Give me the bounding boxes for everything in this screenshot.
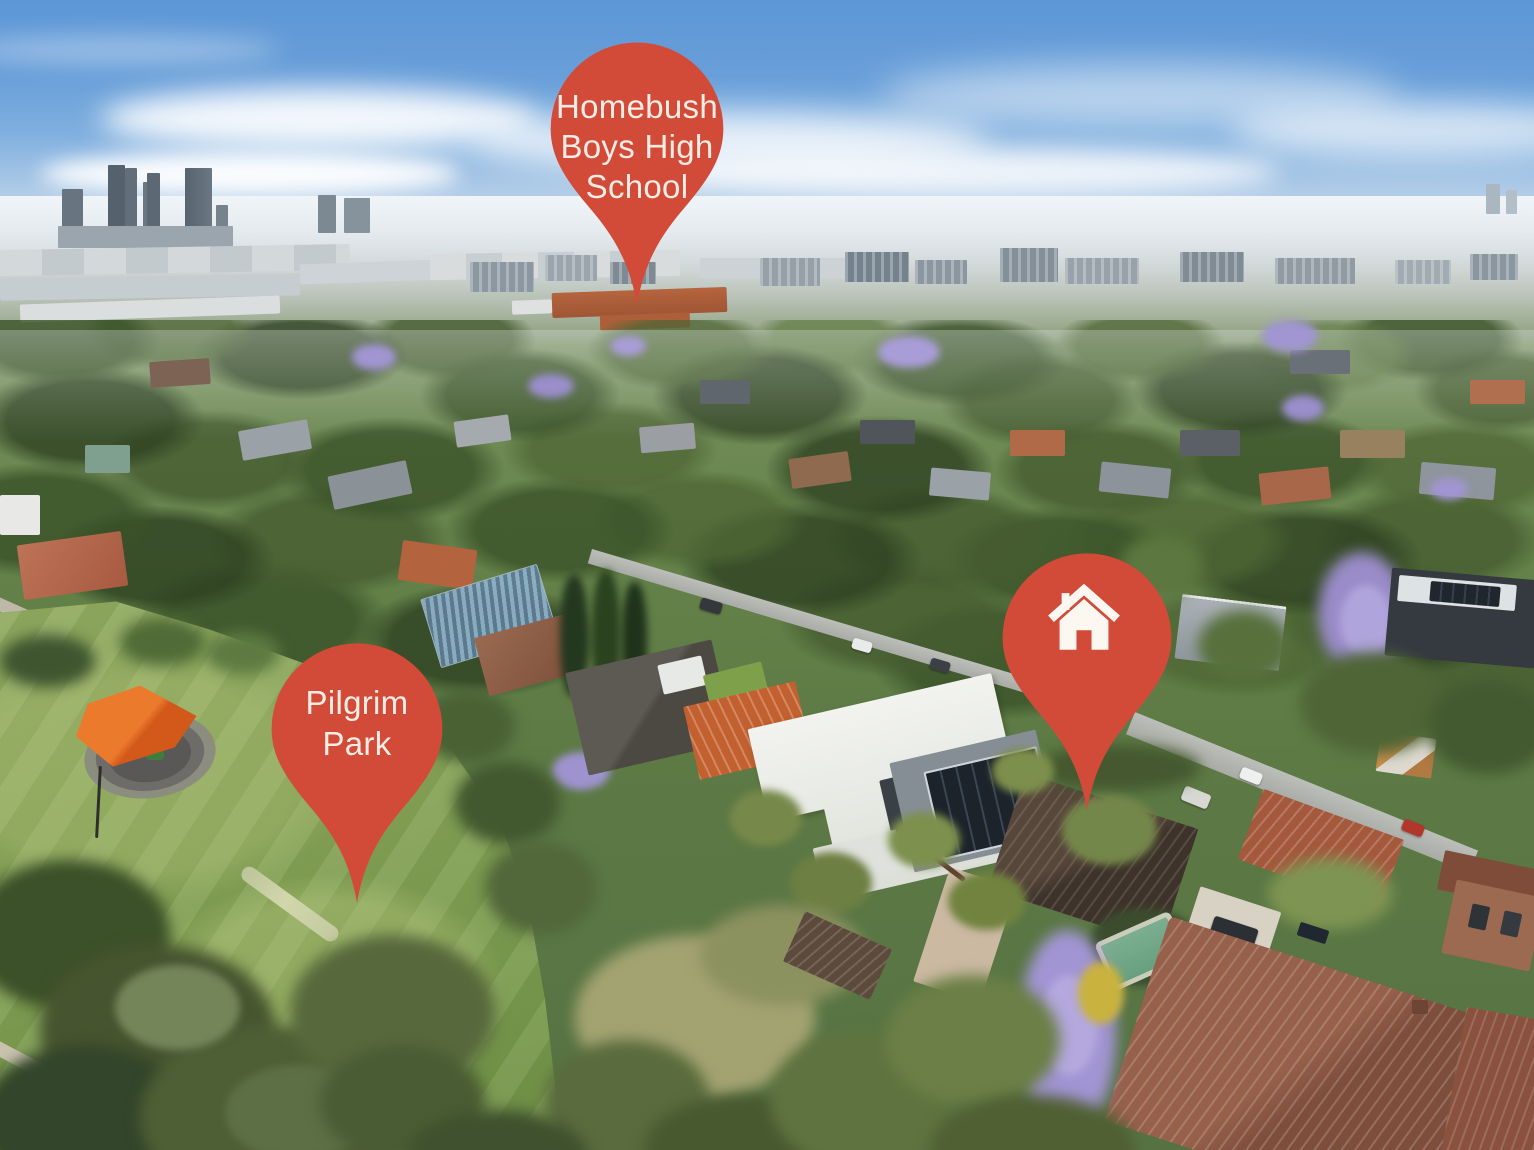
- tower: [344, 198, 370, 233]
- roof-blob: [860, 420, 915, 444]
- tree-blob: [115, 965, 240, 1050]
- tree-blob: [1268, 858, 1393, 930]
- roof-blob: [1470, 380, 1525, 404]
- tree-blob: [1300, 652, 1445, 754]
- marker-property: [995, 548, 1179, 812]
- aerial-photo: Homebush Boys High School Pilgrim Park: [0, 0, 1534, 1150]
- tree-blob: [878, 336, 940, 368]
- palm-tree: [790, 852, 872, 914]
- roof-blob: [700, 380, 750, 404]
- tree-blob: [1430, 478, 1468, 500]
- roof-blob: [929, 467, 991, 500]
- roof-blob: [1290, 350, 1350, 374]
- tower: [1506, 190, 1517, 214]
- yellow-tree: [1078, 962, 1124, 1024]
- tree-blob: [610, 336, 646, 356]
- tree-blob: [885, 975, 1060, 1105]
- building-block: [1395, 260, 1451, 284]
- tower: [58, 226, 233, 248]
- building-block: [1470, 254, 1518, 280]
- marker-pin-shape: [266, 638, 448, 905]
- building-block: [760, 258, 820, 286]
- marker-label: Pilgrim Park: [275, 683, 439, 764]
- scenery: [272, 643, 443, 903]
- roof-blob: [639, 423, 696, 454]
- marker-park: Pilgrim Park: [266, 638, 448, 905]
- tower: [62, 189, 83, 231]
- palm-tree: [948, 872, 1026, 930]
- building-block: [1275, 258, 1355, 284]
- tower: [185, 168, 212, 235]
- tree-blob: [528, 374, 574, 398]
- building-block: [845, 252, 909, 282]
- marker-school: Homebush Boys High School: [545, 37, 729, 307]
- tree-blob: [1198, 610, 1290, 682]
- tree-blob: [352, 344, 396, 370]
- tower: [147, 173, 160, 232]
- tower: [1486, 184, 1500, 214]
- roof-blob: [1010, 430, 1065, 456]
- tree-blob: [455, 762, 560, 844]
- tower: [318, 195, 336, 233]
- chimney: [1412, 1000, 1428, 1014]
- cloud: [40, 152, 460, 196]
- tree-blob: [0, 635, 95, 687]
- roof-blob: [85, 445, 130, 473]
- tree-blob: [1262, 320, 1318, 352]
- tower: [125, 168, 137, 233]
- building-block: [1000, 248, 1058, 282]
- roof-blob: [0, 495, 40, 535]
- building-block: [1065, 258, 1139, 284]
- palm-tree: [730, 790, 802, 846]
- building-block: [1180, 252, 1244, 282]
- roof-blob: [1340, 430, 1405, 458]
- palm-tree: [888, 812, 960, 868]
- building-block: [470, 262, 534, 292]
- marker-label: Homebush Boys High School: [554, 87, 720, 208]
- tower: [108, 165, 125, 233]
- house-icon: [1041, 578, 1127, 656]
- tree-blob: [120, 618, 205, 666]
- roof-blob: [1180, 430, 1240, 456]
- tree-blob: [1282, 395, 1324, 421]
- tree-blob: [485, 842, 597, 934]
- roof-blob: [149, 358, 211, 388]
- building-block: [915, 260, 967, 284]
